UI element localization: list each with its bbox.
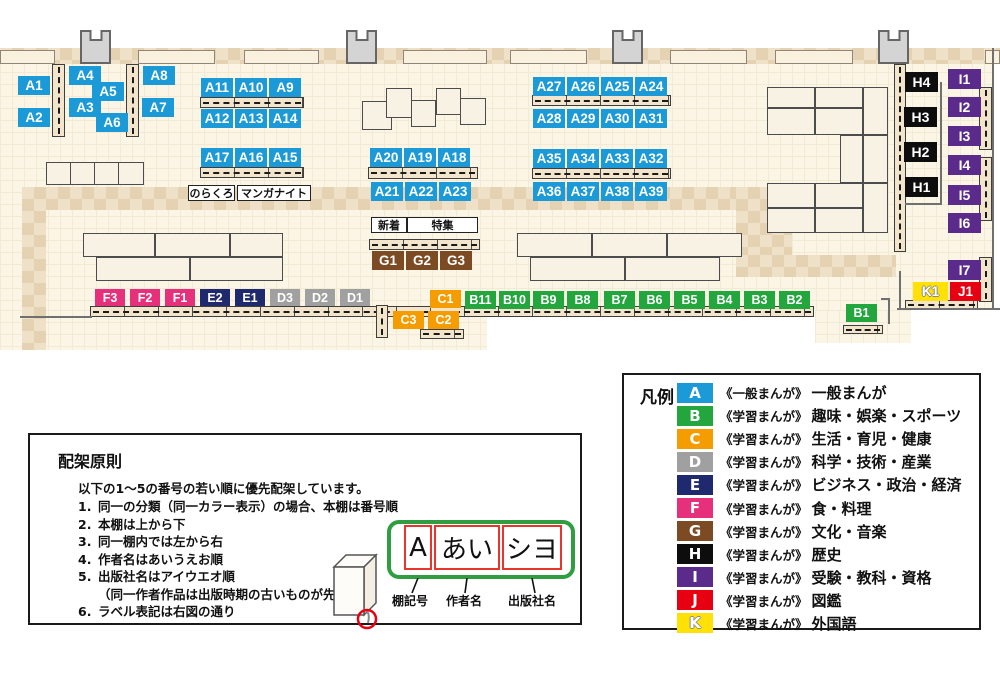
legend-category: 生活・育児・健康 xyxy=(812,428,932,449)
reading-table xyxy=(94,162,119,185)
shelf-label-a32: A32 xyxy=(635,149,667,168)
bookshelf xyxy=(369,239,480,250)
shelf-label-c1: C1 xyxy=(430,290,461,308)
principles-item-text: 作者名はあいうえお順 xyxy=(98,552,223,567)
legend-chip-c: C xyxy=(677,429,713,449)
principles-panel: 配架原則 以下の1～5の番号の若い順に優先配架しています。 1.同一の分類（同一… xyxy=(28,433,582,625)
shelf-label-i4: I4 xyxy=(948,155,981,175)
legend-chip-h: H xyxy=(677,544,713,564)
shelf-label-a31: A31 xyxy=(635,109,667,128)
reading-table xyxy=(118,162,144,185)
principles-title: 配架原則 xyxy=(58,448,122,472)
label-part-box: あい xyxy=(434,525,500,570)
shelf-label-b1: B1 xyxy=(846,304,877,322)
shelf-label-a18: A18 xyxy=(438,148,470,167)
legend-title: 凡例 xyxy=(640,383,674,408)
label-part-caption: 棚記号 xyxy=(392,592,428,609)
wall-line xyxy=(20,316,92,318)
principles-intro: 以下の1～5の番号の若い順に優先配架しています。 xyxy=(78,478,369,497)
shelf-label-i7: I7 xyxy=(948,260,981,280)
principles-item-text: ラベル表記は右図の通り xyxy=(98,604,236,619)
shelf-label-a6: A6 xyxy=(96,113,128,132)
legend-item-i: I《学習まんが》受験・教科・資格 xyxy=(677,566,962,589)
wall-window xyxy=(510,50,587,64)
legend-item-e: E《学習まんが》ビジネス・政治・経済 xyxy=(677,473,962,496)
shelf-label-a14: A14 xyxy=(269,109,301,128)
legend-item-d: D《学習まんが》科学・技術・産業 xyxy=(677,450,962,473)
pillar xyxy=(878,30,909,64)
shelf-label-d3: D3 xyxy=(270,289,300,306)
legend-item-c: C《学習まんが》生活・育児・健康 xyxy=(677,427,962,450)
reading-table xyxy=(625,257,720,281)
shelf-label-a29: A29 xyxy=(567,109,599,128)
label-part-caption: 作者名 xyxy=(446,592,482,609)
reading-table xyxy=(863,87,888,135)
legend-chip-g: G xyxy=(677,521,713,541)
shelf-label-i6: I6 xyxy=(948,213,981,233)
shelf-label-a8: A8 xyxy=(143,66,175,85)
shelf-label-k1: K1 xyxy=(913,282,948,301)
legend-category: 一般まんが xyxy=(812,382,887,403)
principles-item-number: 6. xyxy=(78,603,98,621)
legend-series: 《学習まんが》 xyxy=(720,475,808,494)
shelf-label-a37: A37 xyxy=(567,182,599,201)
shelf-label-b8: B8 xyxy=(567,291,598,309)
bookshelf xyxy=(843,325,883,334)
legend-category: 図鑑 xyxy=(812,590,842,611)
legend-category: 外国語 xyxy=(812,613,857,634)
callout-label: マンガナイト xyxy=(237,185,311,201)
shelf-label-a19: A19 xyxy=(404,148,436,167)
reading-table xyxy=(815,108,863,135)
principles-item-number: 2. xyxy=(78,516,98,534)
pillar-notch xyxy=(887,30,900,41)
principles-item-text: （同一作者作品は出版時期の古いものが先） xyxy=(98,587,348,602)
shelf-label-j1: J1 xyxy=(950,282,981,301)
wall-line xyxy=(940,82,942,204)
legend-item-a: A《一般まんが》一般まんが xyxy=(677,381,962,404)
reading-table xyxy=(767,87,815,108)
legend-series: 《学習まんが》 xyxy=(720,591,808,610)
legend-chip-d: D xyxy=(677,452,713,472)
pillar-notch xyxy=(621,30,634,41)
reading-table xyxy=(840,135,863,183)
legend-item-j: J《学習まんが》図鑑 xyxy=(677,589,962,612)
shelf-label-a17: A17 xyxy=(201,148,233,167)
reading-table xyxy=(155,233,230,257)
legend-category: 文化・音楽 xyxy=(812,521,887,542)
shelf-label-b2: B2 xyxy=(779,291,810,309)
reading-table xyxy=(96,257,190,281)
shelf-label-f2: F2 xyxy=(130,289,160,306)
legend-item-b: B《学習まんが》趣味・娯楽・スポーツ xyxy=(677,404,962,427)
legend-chip-k: K xyxy=(677,613,713,633)
principles-item-number: 4. xyxy=(78,551,98,569)
shelf-label-c3: C3 xyxy=(393,311,424,329)
legend-category: ビジネス・政治・経済 xyxy=(812,474,962,495)
reading-table xyxy=(767,183,815,208)
shelf-label-a26: A26 xyxy=(567,77,599,96)
shelf-label-h4: H4 xyxy=(905,72,938,92)
legend-item-f: F《学習まんが》食・料理 xyxy=(677,496,962,519)
bookshelf xyxy=(200,97,304,108)
wall-window xyxy=(403,50,487,64)
legend-series: 《学習まんが》 xyxy=(720,568,808,587)
shelf-label-g2: G2 xyxy=(406,251,438,270)
wall-window xyxy=(244,50,319,64)
principles-item-text: 同一棚内では左から右 xyxy=(98,534,223,549)
reading-table xyxy=(863,183,888,233)
wall-line xyxy=(899,271,901,309)
label-part-box: シヨ xyxy=(502,525,562,570)
shelf-label-d2: D2 xyxy=(305,289,335,306)
shelf-label-i1: I1 xyxy=(948,69,981,89)
shelf-label-i3: I3 xyxy=(948,126,981,146)
principles-item: 2.本棚は上から下 xyxy=(78,516,398,534)
pillar xyxy=(346,30,377,64)
shelf-label-a33: A33 xyxy=(601,149,633,168)
reading-table xyxy=(815,183,863,208)
shelf-label-b7: B7 xyxy=(604,291,635,309)
legend-series: 《学習まんが》 xyxy=(720,429,808,448)
shelf-label-c2: C2 xyxy=(428,311,459,329)
shelf-label-a2: A2 xyxy=(18,108,50,127)
principles-item-text: 本棚は上から下 xyxy=(98,517,186,532)
shelf-label-a38: A38 xyxy=(601,182,633,201)
shelf-label-g1: G1 xyxy=(372,251,404,270)
shelf-label-a13: A13 xyxy=(235,109,267,128)
wall-line xyxy=(992,48,994,310)
legend-category: 食・料理 xyxy=(812,498,872,519)
shelf-label-a36: A36 xyxy=(533,182,565,201)
reading-table xyxy=(517,233,592,257)
shelf-label-a12: A12 xyxy=(201,109,233,128)
wall-window xyxy=(0,50,55,64)
bookshelf xyxy=(420,329,464,339)
shelf-label-a34: A34 xyxy=(567,149,599,168)
legend-chip-a: A xyxy=(677,383,713,403)
callout-label: 特集 xyxy=(407,217,478,233)
legend-series: 《学習まんが》 xyxy=(720,452,808,471)
shelf-label-i2: I2 xyxy=(948,97,981,117)
shelf-label-b9: B9 xyxy=(533,291,564,309)
legend-chip-f: F xyxy=(677,498,713,518)
label-part-caption: 出版社名 xyxy=(508,592,556,609)
bookshelf xyxy=(532,95,671,106)
shelf-label-b3: B3 xyxy=(744,291,775,309)
library-floor-map: A1A2A4A5A3A6A8A7A11A10A9A12A13A14A17A16A… xyxy=(0,0,1000,700)
shelf-label-f3: F3 xyxy=(95,289,125,306)
shelf-label-a30: A30 xyxy=(601,109,633,128)
reading-table xyxy=(386,88,412,118)
shelf-label-a39: A39 xyxy=(635,182,667,201)
reading-table xyxy=(230,233,283,257)
shelf-label-a24: A24 xyxy=(635,77,667,96)
shelf-label-b5: B5 xyxy=(674,291,705,309)
reading-table xyxy=(667,233,742,257)
shelf-label-a28: A28 xyxy=(533,109,565,128)
shelf-label-a20: A20 xyxy=(370,148,402,167)
bookshelf xyxy=(52,64,65,137)
legend-series: 《学習まんが》 xyxy=(720,499,808,518)
legend-panel: 凡例 A《一般まんが》一般まんがB《学習まんが》趣味・娯楽・スポーツC《学習まん… xyxy=(622,373,981,630)
shelf-label-a22: A22 xyxy=(405,182,437,201)
pillar xyxy=(612,30,643,64)
legend-category: 歴史 xyxy=(812,544,842,565)
reading-table xyxy=(815,208,863,233)
legend-chip-e: E xyxy=(677,475,713,495)
legend-category: 受験・教科・資格 xyxy=(812,567,932,588)
bookshelf xyxy=(200,167,304,178)
reading-table xyxy=(530,257,625,281)
shelf-label-a11: A11 xyxy=(201,78,233,97)
legend-series: 《学習まんが》 xyxy=(720,614,808,633)
wall-window xyxy=(670,50,747,64)
shelf-label-a7: A7 xyxy=(142,98,174,117)
reading-table xyxy=(190,257,283,281)
legend-item-h: H《学習まんが》歴史 xyxy=(677,543,962,566)
legend-series: 《学習まんが》 xyxy=(720,522,808,541)
reading-table xyxy=(592,233,667,257)
pillar-notch xyxy=(89,30,102,41)
shelf-label-b6: B6 xyxy=(639,291,670,309)
legend-rows: A《一般まんが》一般まんがB《学習まんが》趣味・娯楽・スポーツC《学習まんが》生… xyxy=(677,381,962,635)
principles-item: 3.同一棚内では左から右 xyxy=(78,533,398,551)
shelf-label-a15: A15 xyxy=(269,148,301,167)
book-icon xyxy=(330,551,386,631)
pillar xyxy=(80,30,111,64)
wall-line xyxy=(897,308,1000,310)
shelf-label-a23: A23 xyxy=(439,182,471,201)
shelf-label-a35: A35 xyxy=(533,149,565,168)
shelf-label-a1: A1 xyxy=(18,76,50,95)
shelf-label-h2: H2 xyxy=(904,142,937,162)
shelf-label-h3: H3 xyxy=(904,107,937,127)
legend-chip-i: I xyxy=(677,567,713,587)
bookshelf xyxy=(532,168,671,179)
legend-series: 《学習まんが》 xyxy=(720,545,808,564)
wall-line xyxy=(888,298,890,324)
principles-item-number: 5. xyxy=(78,568,98,586)
reading-table xyxy=(46,162,71,185)
shelf-label-a27: A27 xyxy=(533,77,565,96)
reading-table xyxy=(863,135,888,183)
reading-table xyxy=(460,98,486,125)
walkway-band xyxy=(736,255,896,277)
legend-category: 趣味・娯楽・スポーツ xyxy=(812,405,962,426)
bookshelf xyxy=(376,305,388,338)
legend-item-k: K《学習まんが》外国語 xyxy=(677,612,962,635)
walkway-band xyxy=(22,187,46,350)
shelf-label-e2: E2 xyxy=(200,289,230,306)
shelf-label-g3: G3 xyxy=(440,251,472,270)
wall-window xyxy=(138,50,215,64)
legend-chip-b: B xyxy=(677,406,713,426)
principles-item-text: 出版社名はアイウエオ順 xyxy=(98,569,235,584)
reading-table xyxy=(815,87,863,108)
shelf-label-f1: F1 xyxy=(165,289,195,306)
shelf-label-a9: A9 xyxy=(269,78,301,97)
reading-table xyxy=(83,233,155,257)
shelf-label-a21: A21 xyxy=(371,182,403,201)
principles-item-text: 同一の分類（同一カラー表示）の場合、本棚は番号順 xyxy=(98,499,398,514)
reading-table xyxy=(411,100,436,127)
shelf-label-a16: A16 xyxy=(235,148,267,167)
principles-item-number: 1. xyxy=(78,498,98,516)
legend-item-g: G《学習まんが》文化・音楽 xyxy=(677,520,962,543)
shelf-label-a25: A25 xyxy=(601,77,633,96)
legend-chip-j: J xyxy=(677,590,713,610)
wall-window xyxy=(775,50,853,64)
reading-table xyxy=(767,208,815,233)
reading-table xyxy=(70,162,95,185)
callout-label: のらくろ xyxy=(188,185,235,201)
shelf-label-i5: I5 xyxy=(948,185,981,205)
principles-item-number: 3. xyxy=(78,533,98,551)
legend-series: 《一般まんが》 xyxy=(720,383,808,402)
shelf-label-d1: D1 xyxy=(340,289,370,306)
wall-line xyxy=(881,298,890,300)
legend-series: 《学習まんが》 xyxy=(720,406,808,425)
shelf-label-b4: B4 xyxy=(709,291,740,309)
pillar-notch xyxy=(355,30,368,41)
shelf-label-a10: A10 xyxy=(235,78,267,97)
label-part-box: A xyxy=(404,525,432,570)
principles-item: 1.同一の分類（同一カラー表示）の場合、本棚は番号順 xyxy=(78,498,398,516)
shelf-label-e1: E1 xyxy=(235,289,265,306)
reading-table xyxy=(767,108,815,135)
reading-table xyxy=(436,88,461,115)
callout-label: 新着 xyxy=(371,217,407,233)
shelf-label-b10: B10 xyxy=(499,291,530,309)
wall-line xyxy=(905,203,942,205)
shelf-label-h1: H1 xyxy=(905,177,938,197)
shelf-label-b11: B11 xyxy=(465,291,496,309)
legend-category: 科学・技術・産業 xyxy=(812,451,932,472)
bookshelf xyxy=(368,167,478,179)
